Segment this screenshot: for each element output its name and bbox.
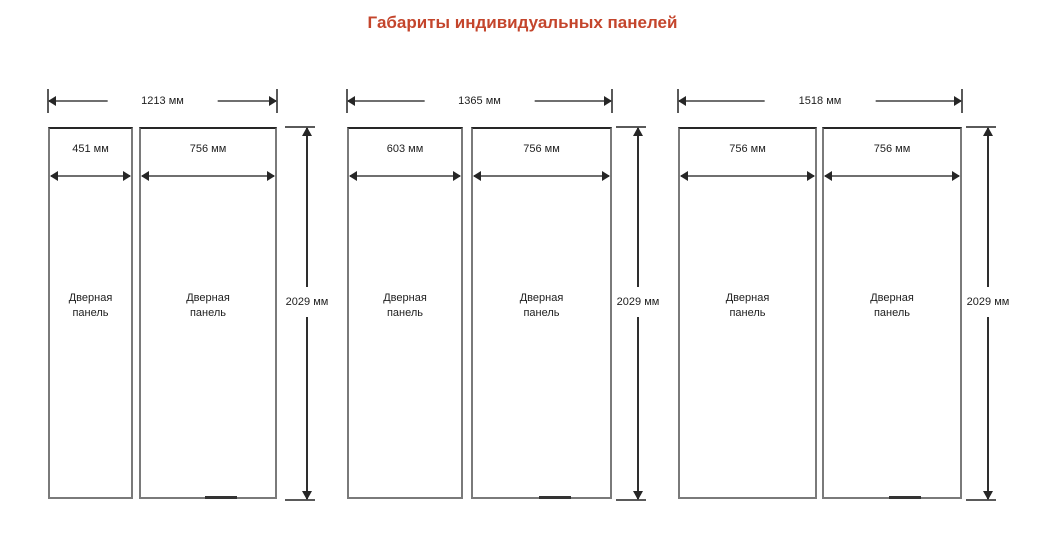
arrowhead-up-icon	[302, 127, 312, 136]
panel-name-label: Дверная панель	[473, 129, 610, 497]
arrowhead-up-icon	[633, 127, 643, 136]
overall-width-dimension: 1213 мм	[48, 89, 277, 113]
arrowhead-down-icon	[633, 491, 643, 500]
panel-name-label: Дверная панель	[824, 129, 960, 497]
overall-width-label: 1213 мм	[107, 94, 218, 108]
panel-name-label: Дверная панель	[141, 129, 275, 497]
door-panel: 756 мм Дверная панель	[678, 127, 817, 499]
arrowhead-down-icon	[302, 491, 312, 500]
height-label: 2029 мм	[283, 287, 332, 317]
diagram-title: Габариты индивидуальных панелей	[0, 13, 1045, 33]
height-dimension: 2029 мм	[626, 127, 650, 500]
arrowhead-left-icon	[347, 96, 355, 106]
height-label: 2029 мм	[614, 287, 663, 317]
threshold-mark	[889, 496, 921, 499]
door-panel: 451 мм Дверная панель	[48, 127, 133, 499]
overall-width-dimension: 1518 мм	[678, 89, 962, 113]
threshold-mark	[539, 496, 571, 499]
threshold-mark	[205, 496, 237, 499]
overall-width-dimension: 1365 мм	[347, 89, 612, 113]
arrowhead-down-icon	[983, 491, 993, 500]
door-panel: 603 мм Дверная панель	[347, 127, 463, 499]
overall-width-label: 1365 мм	[424, 94, 535, 108]
arrowhead-right-icon	[954, 96, 962, 106]
height-dimension: 2029 мм	[976, 127, 1000, 500]
panel-name-label: Дверная панель	[50, 129, 131, 497]
door-panel: 756 мм Дверная панель	[471, 127, 612, 499]
height-dimension: 2029 мм	[295, 127, 319, 500]
arrowhead-up-icon	[983, 127, 993, 136]
door-panel: 756 мм Дверная панель	[139, 127, 277, 499]
door-panel: 756 мм Дверная панель	[822, 127, 962, 499]
panel-name-label: Дверная панель	[349, 129, 461, 497]
arrowhead-left-icon	[48, 96, 56, 106]
arrowhead-left-icon	[678, 96, 686, 106]
arrowhead-right-icon	[604, 96, 612, 106]
panel-name-label: Дверная панель	[680, 129, 815, 497]
arrowhead-right-icon	[269, 96, 277, 106]
height-label: 2029 мм	[964, 287, 1013, 317]
overall-width-label: 1518 мм	[765, 94, 876, 108]
